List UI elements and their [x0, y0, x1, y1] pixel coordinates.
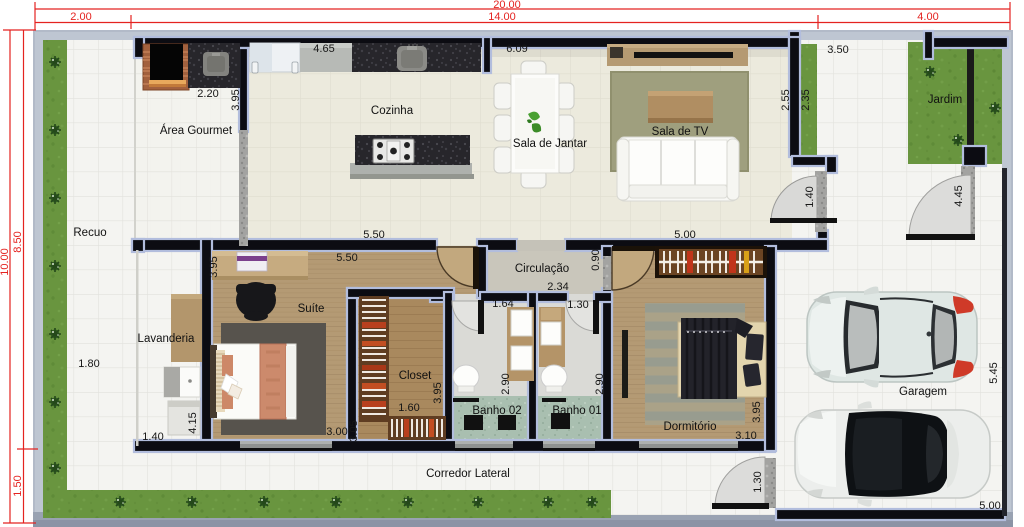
svg-text:4.00: 4.00 [917, 11, 938, 23]
svg-text:2.90: 2.90 [500, 373, 512, 394]
svg-text:Circulação: Circulação [515, 263, 569, 275]
svg-text:3.95: 3.95 [208, 256, 220, 277]
svg-text:20.00: 20.00 [493, 0, 521, 11]
svg-text:5.00: 5.00 [979, 500, 1000, 512]
svg-text:Sala de TV: Sala de TV [652, 126, 709, 138]
svg-text:1.64: 1.64 [492, 298, 513, 310]
svg-text:6.09: 6.09 [506, 43, 527, 55]
svg-text:4.15: 4.15 [187, 412, 199, 433]
svg-text:Sala de Jantar: Sala de Jantar [513, 138, 587, 150]
svg-text:4.65: 4.65 [313, 43, 334, 55]
svg-text:1.30: 1.30 [567, 299, 588, 311]
svg-text:Dormitório: Dormitório [663, 421, 716, 433]
svg-text:0.90: 0.90 [590, 249, 602, 270]
svg-text:1.40: 1.40 [804, 186, 816, 207]
svg-text:3.00: 3.00 [326, 426, 347, 438]
svg-text:Corredor Lateral: Corredor Lateral [426, 468, 510, 480]
svg-text:2.35: 2.35 [800, 89, 812, 110]
svg-text:2.00: 2.00 [70, 11, 91, 23]
svg-text:5.45: 5.45 [988, 362, 1000, 383]
svg-text:1.80: 1.80 [78, 358, 99, 370]
svg-text:14.00: 14.00 [488, 11, 516, 23]
svg-text:1.60: 1.60 [398, 402, 419, 414]
svg-text:5.00: 5.00 [674, 229, 695, 241]
svg-text:Lavanderia: Lavanderia [138, 333, 196, 345]
svg-text:3.05: 3.05 [348, 420, 360, 441]
svg-text:3.95: 3.95 [751, 401, 763, 422]
svg-text:Recuo: Recuo [73, 227, 106, 239]
svg-text:1.50: 1.50 [12, 475, 24, 496]
svg-text:2.34: 2.34 [547, 281, 568, 293]
svg-text:Jardim: Jardim [928, 94, 963, 106]
svg-text:3.50: 3.50 [827, 44, 848, 56]
svg-text:8.50: 8.50 [12, 231, 24, 252]
svg-text:Suíte: Suíte [298, 303, 325, 315]
svg-text:Banho 01: Banho 01 [552, 405, 601, 417]
svg-text:2.20: 2.20 [197, 88, 218, 100]
svg-text:Closet: Closet [399, 370, 432, 382]
svg-text:Área Gourmet: Área Gourmet [160, 124, 233, 137]
svg-text:3.10: 3.10 [735, 430, 756, 442]
svg-text:Garagem: Garagem [899, 386, 947, 398]
svg-text:2.90: 2.90 [594, 373, 606, 394]
svg-text:3.95: 3.95 [432, 382, 444, 403]
svg-text:3.95: 3.95 [230, 89, 242, 110]
svg-text:5.50: 5.50 [336, 252, 357, 264]
svg-text:2.55: 2.55 [780, 89, 792, 110]
svg-text:Banho 02: Banho 02 [472, 405, 521, 417]
svg-text:5.50: 5.50 [363, 229, 384, 241]
svg-text:4.45: 4.45 [953, 185, 965, 206]
svg-text:10.00: 10.00 [0, 248, 11, 276]
svg-text:1.40: 1.40 [142, 431, 163, 443]
svg-text:Cozinha: Cozinha [371, 105, 414, 117]
svg-text:1.30: 1.30 [752, 471, 764, 492]
